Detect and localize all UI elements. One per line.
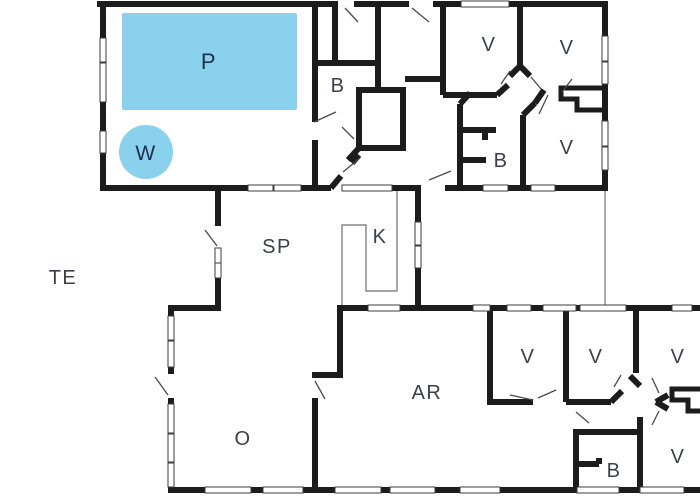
sauna-room-walls (359, 90, 403, 148)
room-label-kitchen: K (373, 226, 388, 248)
room-label-bedroom-6: V (671, 346, 686, 368)
window (483, 185, 508, 191)
floor-plan-svg: PWBVVBVTESPKOARVVVBV (0, 0, 700, 500)
window (415, 246, 421, 268)
window (580, 305, 626, 311)
window (263, 487, 303, 493)
window (100, 63, 106, 102)
window (602, 62, 608, 84)
window (168, 404, 174, 433)
closet-notch-top (561, 88, 605, 110)
room-label-bedroom-7: V (671, 446, 686, 468)
window (168, 463, 174, 487)
kitchen-counter (342, 191, 397, 305)
room-label-bedroom-3: V (560, 137, 575, 159)
window (543, 305, 576, 311)
window (168, 434, 174, 462)
window (100, 38, 106, 62)
window (602, 147, 608, 170)
window (461, 1, 509, 7)
thin-lines (342, 191, 605, 307)
room-label-activity-room: AR (412, 382, 443, 404)
window (335, 487, 381, 493)
room-label-bathroom-south: B (607, 460, 622, 482)
window (415, 222, 421, 245)
closet-notch-bottom (672, 389, 700, 411)
window (460, 487, 500, 493)
room-label-living-room: O (234, 428, 251, 450)
room-label-terrace: TE (49, 267, 78, 289)
window (205, 487, 251, 493)
window (577, 487, 619, 493)
window (168, 316, 174, 340)
window (602, 36, 608, 61)
window (672, 305, 692, 311)
room-label-hallway: SP (262, 236, 292, 258)
window (215, 248, 221, 263)
window (602, 121, 608, 146)
floor-plan: PWBVVBVTESPKOARVVVBV (0, 0, 700, 500)
window (640, 487, 684, 493)
window (507, 305, 531, 311)
window (168, 341, 174, 367)
room-label-bathroom-top: B (331, 75, 346, 97)
window (248, 185, 273, 191)
room-label-whirlpool: W (135, 142, 156, 165)
room-label-bedroom-4: V (521, 346, 536, 368)
room-label-bedroom-5: V (589, 346, 604, 368)
window (390, 487, 435, 493)
window (368, 305, 400, 311)
room-label-bedroom-2: V (560, 37, 575, 59)
window (531, 185, 555, 191)
window (473, 305, 490, 311)
window (274, 185, 301, 191)
window (215, 263, 221, 278)
window (100, 131, 106, 153)
room-label-bedroom-1: V (482, 34, 497, 56)
window (342, 185, 392, 191)
room-label-pool: P (201, 49, 217, 74)
room-label-bathroom-east: B (494, 150, 509, 172)
